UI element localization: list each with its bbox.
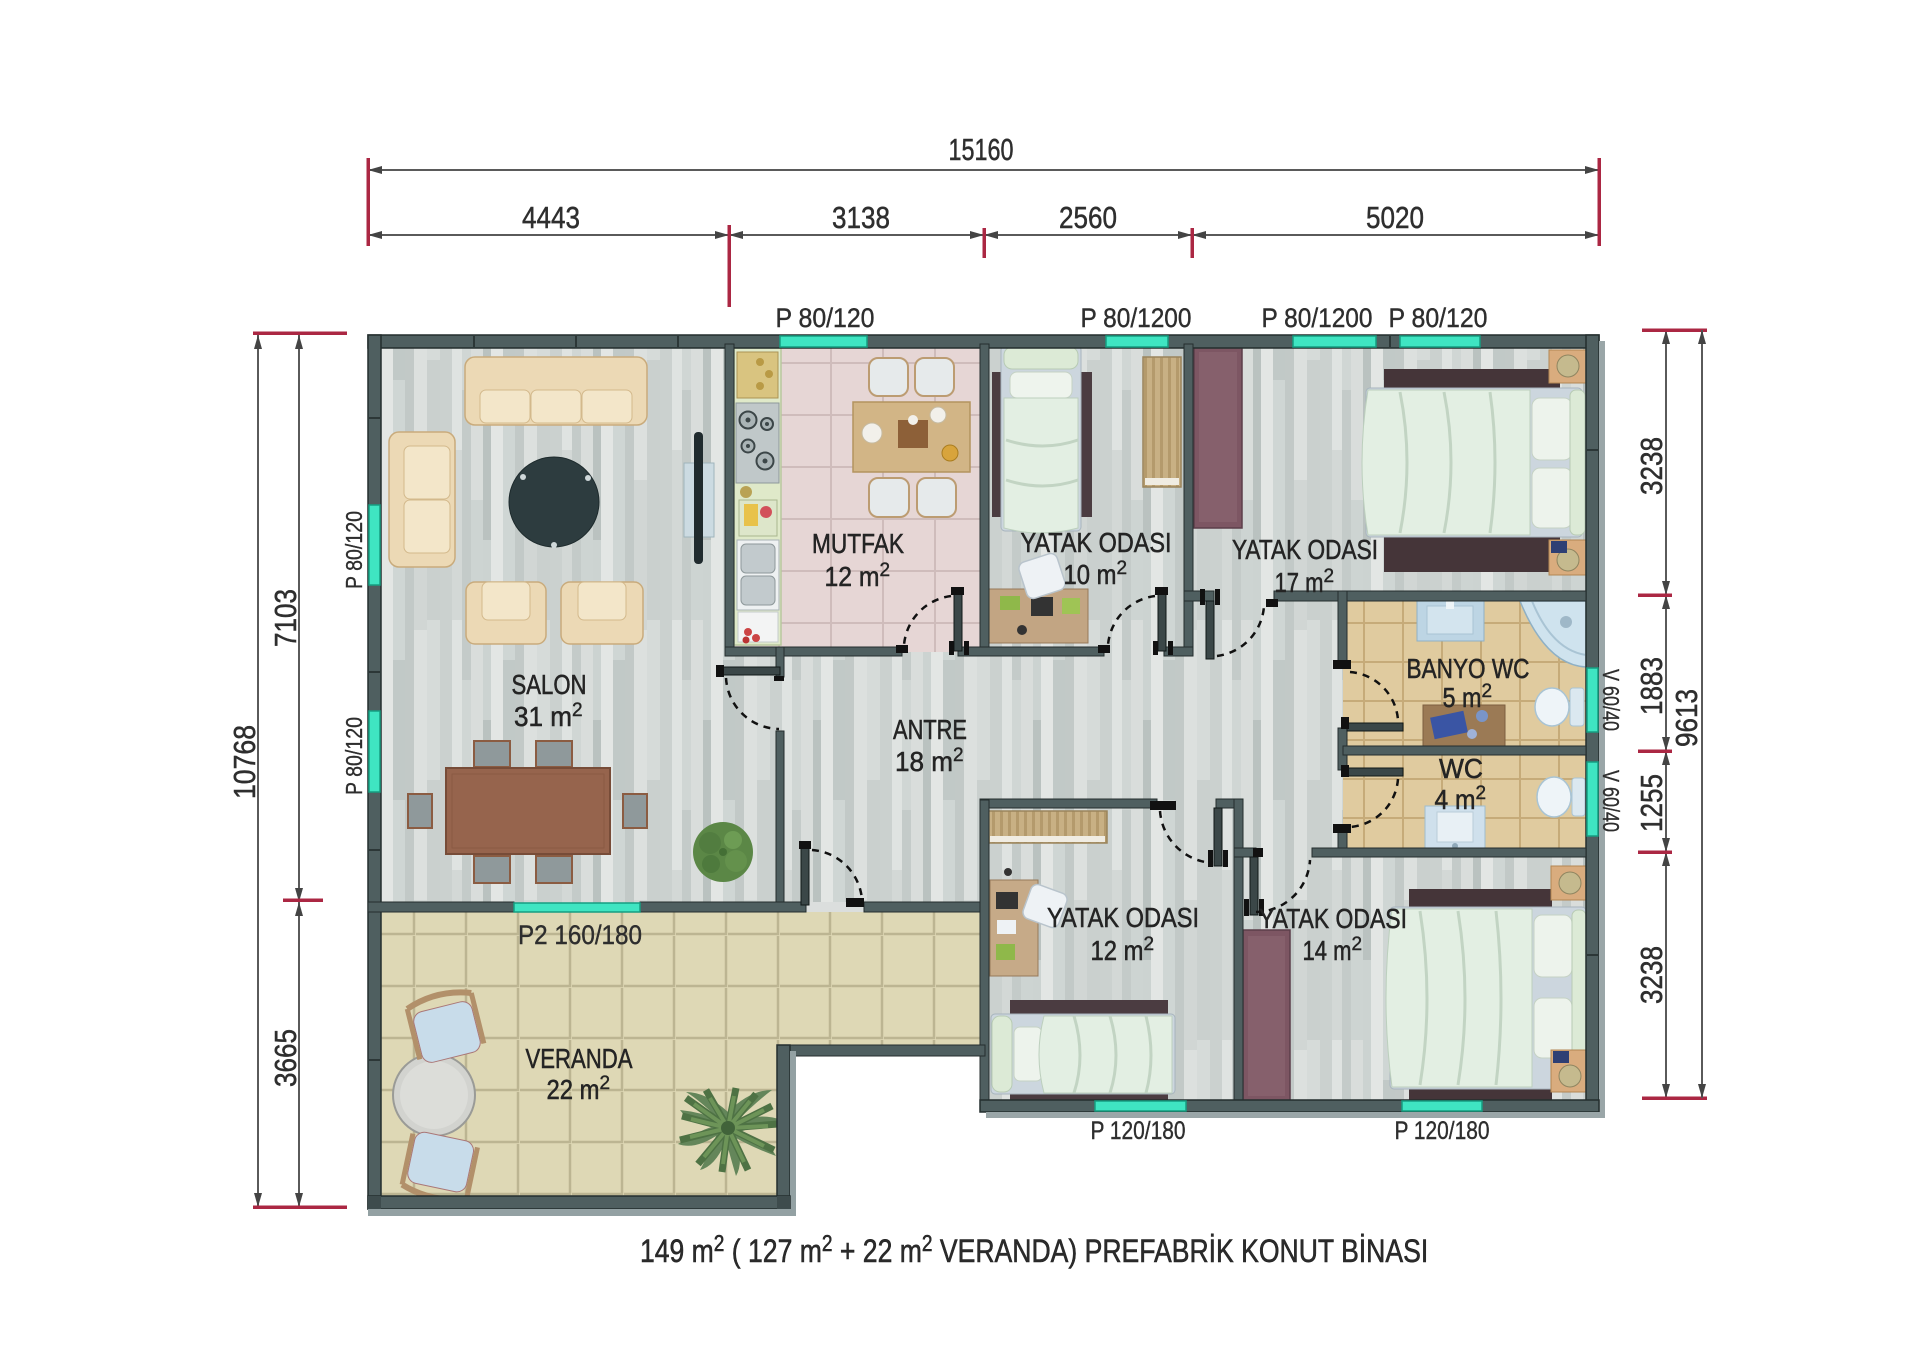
- svg-text:4 m: 4 m: [1435, 784, 1476, 815]
- svg-text:P2 160/180: P2 160/180: [518, 920, 642, 950]
- svg-text:2: 2: [880, 560, 891, 581]
- svg-text:( 127 m: ( 127 m: [724, 1233, 822, 1269]
- svg-text:SALON: SALON: [512, 669, 587, 700]
- svg-text:1883: 1883: [1634, 657, 1669, 715]
- svg-text:V 60/40: V 60/40: [1598, 669, 1624, 731]
- svg-text:3238: 3238: [1634, 946, 1669, 1004]
- svg-text:22 m: 22 m: [547, 1074, 600, 1105]
- svg-text:10 m: 10 m: [1064, 559, 1117, 590]
- svg-text:3238: 3238: [1634, 437, 1669, 495]
- svg-text:149 m: 149 m: [640, 1233, 714, 1269]
- svg-text:14 m: 14 m: [1303, 935, 1352, 966]
- svg-text:2: 2: [1482, 681, 1493, 702]
- svg-text:BANYO WC: BANYO WC: [1407, 653, 1530, 684]
- svg-text:2: 2: [714, 1230, 725, 1256]
- svg-text:10768: 10768: [227, 725, 262, 799]
- svg-text:P 80/120: P 80/120: [1389, 303, 1488, 333]
- svg-text:18 m: 18 m: [895, 746, 953, 777]
- svg-text:2: 2: [922, 1230, 933, 1256]
- svg-text:VERANDA: VERANDA: [526, 1043, 634, 1074]
- svg-text:P 80/1200: P 80/1200: [1081, 303, 1192, 333]
- svg-text:2: 2: [1117, 558, 1128, 579]
- svg-text:P 80/120: P 80/120: [341, 511, 367, 589]
- svg-text:2: 2: [1352, 934, 1363, 955]
- svg-text:15160: 15160: [949, 132, 1014, 167]
- svg-text:4443: 4443: [522, 200, 580, 235]
- svg-text:P 120/180: P 120/180: [1091, 1117, 1186, 1145]
- svg-text:2560: 2560: [1059, 200, 1117, 235]
- svg-text:9613: 9613: [1669, 689, 1704, 747]
- svg-text:YATAK ODASI: YATAK ODASI: [1259, 903, 1407, 934]
- svg-text:P 80/120: P 80/120: [341, 717, 367, 795]
- svg-text:VERANDA) PREFABRİK KONUT BİNAS: VERANDA) PREFABRİK KONUT BİNASI: [933, 1233, 1429, 1269]
- svg-text:3665: 3665: [268, 1029, 303, 1087]
- svg-text:1255: 1255: [1634, 774, 1669, 832]
- svg-text:+ 22 m: + 22 m: [833, 1233, 922, 1269]
- svg-text:31 m: 31 m: [514, 701, 572, 732]
- svg-text:2: 2: [1476, 783, 1487, 804]
- svg-text:P 80/1200: P 80/1200: [1262, 303, 1373, 333]
- svg-text:P 120/180: P 120/180: [1395, 1117, 1490, 1145]
- svg-text:MUTFAK: MUTFAK: [812, 528, 905, 559]
- svg-text:2: 2: [1324, 566, 1335, 587]
- svg-text:7103: 7103: [268, 589, 303, 647]
- svg-text:5020: 5020: [1366, 200, 1424, 235]
- svg-text:3138: 3138: [832, 200, 890, 235]
- svg-text:YATAK ODASI: YATAK ODASI: [1021, 527, 1172, 558]
- svg-text:YATAK ODASI: YATAK ODASI: [1047, 902, 1199, 933]
- svg-text:P 80/120: P 80/120: [776, 303, 875, 333]
- svg-text:2: 2: [822, 1230, 833, 1256]
- svg-text:12 m: 12 m: [1091, 935, 1144, 966]
- svg-text:17 m: 17 m: [1275, 567, 1324, 598]
- svg-text:WC: WC: [1439, 753, 1483, 784]
- svg-text:2: 2: [600, 1073, 611, 1094]
- svg-text:5 m: 5 m: [1443, 682, 1482, 713]
- svg-text:2: 2: [953, 745, 964, 766]
- svg-text:2: 2: [572, 700, 583, 721]
- svg-text:ANTRE: ANTRE: [893, 714, 967, 745]
- svg-text:2: 2: [1144, 934, 1155, 955]
- svg-text:V 60/40: V 60/40: [1598, 770, 1624, 832]
- svg-text:YATAK ODASI: YATAK ODASI: [1232, 534, 1378, 565]
- svg-text:12 m: 12 m: [825, 561, 880, 592]
